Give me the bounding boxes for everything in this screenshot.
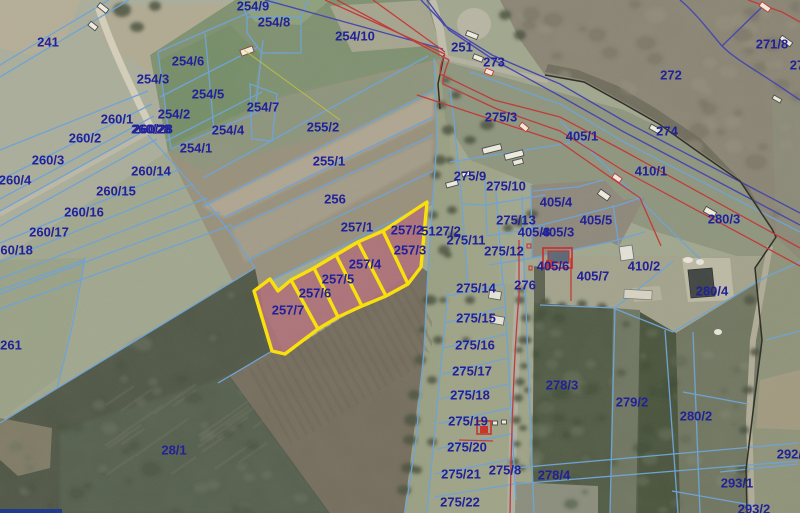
svg-text:275/17: 275/17: [452, 364, 492, 379]
svg-text:256: 256: [324, 192, 346, 207]
svg-text:260/15: 260/15: [96, 184, 136, 199]
svg-text:292/2: 292/2: [777, 447, 800, 462]
svg-text:257/6: 257/6: [299, 286, 332, 301]
svg-text:257/3: 257/3: [394, 243, 427, 258]
svg-text:273: 273: [483, 55, 505, 70]
svg-text:257/5: 257/5: [322, 272, 355, 287]
svg-text:405/3: 405/3: [542, 225, 575, 240]
svg-text:275/16: 275/16: [455, 338, 495, 353]
svg-text:278/3: 278/3: [546, 378, 579, 393]
svg-text:254/2: 254/2: [158, 107, 191, 122]
svg-text:275/18: 275/18: [450, 388, 490, 403]
svg-text:260/28: 260/28: [133, 122, 173, 137]
svg-text:275/20: 275/20: [447, 440, 487, 455]
svg-text:254/6: 254/6: [172, 54, 205, 69]
svg-text:272: 272: [660, 68, 682, 83]
svg-text:275/15: 275/15: [456, 311, 496, 326]
svg-text:280/3: 280/3: [708, 212, 741, 227]
svg-text:241: 241: [37, 35, 59, 50]
svg-text:271/8: 271/8: [756, 37, 789, 52]
svg-text:275/9: 275/9: [454, 169, 487, 184]
svg-text:280/4: 280/4: [696, 284, 729, 299]
svg-text:254/7: 254/7: [247, 100, 280, 115]
svg-text:261: 261: [0, 338, 22, 353]
svg-text:254/3: 254/3: [137, 72, 170, 87]
svg-text:275/11: 275/11: [446, 233, 485, 248]
svg-text:260/16: 260/16: [64, 205, 104, 220]
svg-text:280/2: 280/2: [680, 409, 713, 424]
svg-text:275/3: 275/3: [485, 110, 518, 125]
svg-text:275/12: 275/12: [484, 244, 524, 259]
svg-text:405/5: 405/5: [580, 213, 613, 228]
svg-text:278/4: 278/4: [538, 468, 571, 483]
svg-text:257/1: 257/1: [341, 220, 374, 235]
svg-text:410/1: 410/1: [635, 164, 668, 179]
svg-text:274: 274: [656, 124, 678, 139]
svg-text:275/10: 275/10: [486, 179, 526, 194]
svg-text:254/1: 254/1: [180, 141, 213, 156]
svg-text:28/1: 28/1: [161, 443, 186, 458]
svg-text:254/8: 254/8: [258, 15, 291, 30]
svg-text:260/18: 260/18: [0, 243, 33, 258]
svg-text:279/2: 279/2: [616, 395, 649, 410]
svg-text:276: 276: [514, 278, 536, 293]
svg-text:260/4: 260/4: [0, 173, 32, 188]
svg-text:254/9: 254/9: [237, 0, 270, 14]
svg-text:254/4: 254/4: [212, 123, 245, 138]
svg-text:405/7: 405/7: [577, 269, 610, 284]
svg-text:255/2: 255/2: [307, 120, 340, 135]
svg-text:293/2: 293/2: [738, 502, 771, 513]
svg-text:257/7: 257/7: [272, 303, 305, 318]
svg-text:257/4: 257/4: [349, 257, 382, 272]
svg-text:275/14: 275/14: [456, 281, 497, 296]
svg-text:275/19: 275/19: [448, 414, 488, 429]
svg-text:260/14: 260/14: [131, 164, 172, 179]
svg-text:257/2: 257/2: [391, 223, 424, 238]
svg-text:27: 27: [790, 58, 800, 73]
svg-text:275/21: 275/21: [441, 467, 481, 482]
svg-text:293/1: 293/1: [721, 476, 754, 491]
svg-text:254/5: 254/5: [192, 87, 225, 102]
svg-text:405/4: 405/4: [540, 195, 573, 210]
svg-text:260/17: 260/17: [29, 225, 69, 240]
svg-text:405/6: 405/6: [537, 259, 570, 274]
svg-text:410/2: 410/2: [628, 259, 661, 274]
svg-text:275/8: 275/8: [489, 463, 522, 478]
svg-text:260/3: 260/3: [32, 153, 65, 168]
svg-text:260/1: 260/1: [101, 112, 134, 127]
svg-text:255/1: 255/1: [313, 154, 346, 169]
svg-text:405/1: 405/1: [566, 129, 599, 144]
svg-text:254/10: 254/10: [335, 29, 375, 44]
svg-text:275/22: 275/22: [440, 495, 480, 510]
svg-text:260/2: 260/2: [69, 131, 102, 146]
svg-text:251: 251: [451, 40, 473, 55]
